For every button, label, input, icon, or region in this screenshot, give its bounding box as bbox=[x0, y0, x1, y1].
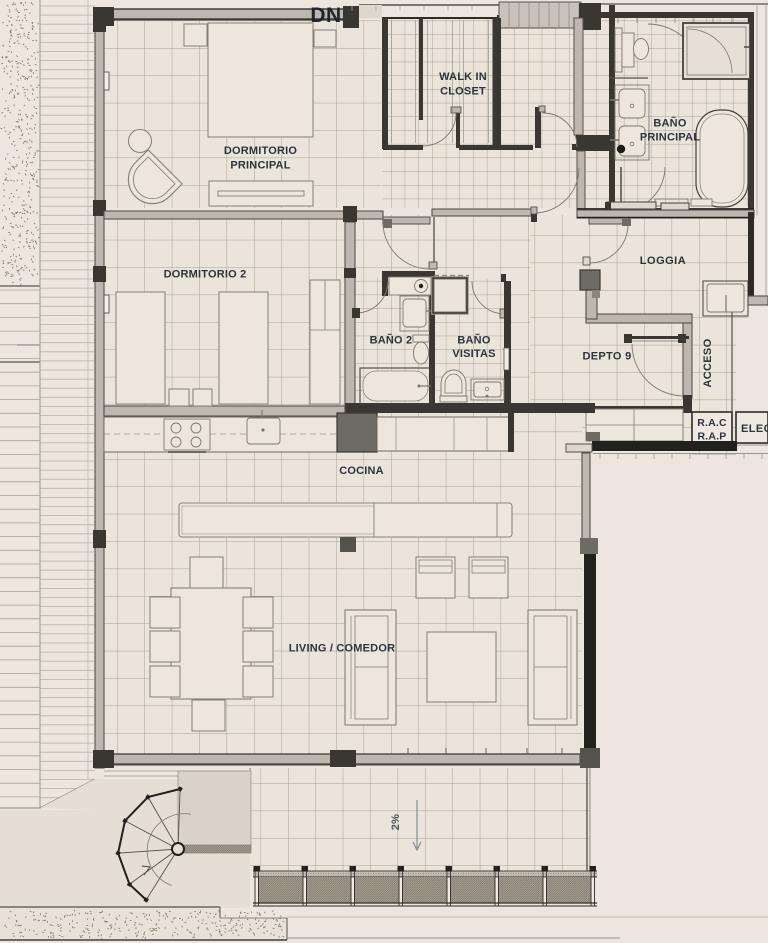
svg-text:R.A.P: R.A.P bbox=[697, 431, 726, 443]
svg-text:ELEC: ELEC bbox=[741, 423, 768, 435]
svg-text:BAÑO: BAÑO bbox=[457, 334, 490, 347]
svg-text:WALK IN: WALK IN bbox=[439, 71, 487, 83]
svg-text:DORMITORIO: DORMITORIO bbox=[224, 145, 298, 157]
svg-text:PRINCIPAL: PRINCIPAL bbox=[640, 132, 700, 144]
svg-text:BAÑO: BAÑO bbox=[653, 117, 686, 130]
svg-text:LIVING / COMEDOR: LIVING / COMEDOR bbox=[289, 643, 395, 655]
svg-text:DORMITORIO 2: DORMITORIO 2 bbox=[164, 269, 247, 281]
svg-text:DN: DN bbox=[310, 4, 341, 27]
svg-text:PRINCIPAL: PRINCIPAL bbox=[230, 160, 290, 172]
svg-text:LOGGIA: LOGGIA bbox=[640, 255, 686, 267]
svg-text:VISITAS: VISITAS bbox=[452, 348, 495, 360]
svg-text:R.A.C: R.A.C bbox=[697, 417, 727, 429]
svg-text:BAÑO 2: BAÑO 2 bbox=[370, 334, 413, 347]
svg-text:CLOSET: CLOSET bbox=[440, 86, 486, 98]
svg-text:COCINA: COCINA bbox=[339, 465, 384, 477]
svg-text:DEPTO 9: DEPTO 9 bbox=[583, 351, 632, 363]
svg-text:2%: 2% bbox=[390, 814, 402, 831]
svg-text:ACCESO: ACCESO bbox=[702, 338, 714, 387]
